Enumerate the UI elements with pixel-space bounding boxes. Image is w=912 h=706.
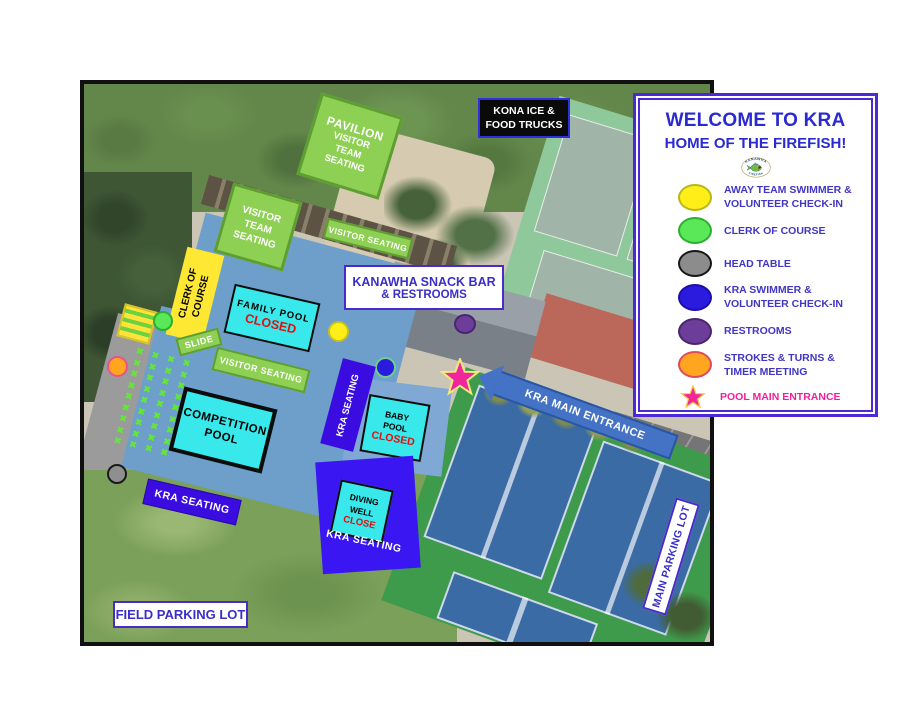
legend-item-pool-entrance: POOL MAIN ENTRANCE: [678, 385, 871, 410]
orange-dot-icon: [678, 351, 712, 378]
legend-item-head-table: HEAD TABLE: [678, 250, 871, 277]
site-map-poster: PAVILION VISITOR TEAM SEATING KONA ICE &…: [0, 0, 912, 706]
legend-item-away-team: AWAY TEAM SWIMMER & VOLUNTEER CHECK-IN: [678, 183, 871, 211]
purple-dot-icon: [678, 318, 712, 345]
kra-check-in-dot: [375, 357, 396, 378]
svg-text:KANAWHA: KANAWHA: [744, 157, 768, 164]
snack-bar-label: KANAWHA SNACK BAR & RESTROOMS: [344, 265, 504, 310]
legend-title: WELCOME TO KRA: [666, 110, 846, 132]
pool-main-entrance-star: [440, 358, 480, 398]
logo-arc-top: KANAWHA: [744, 157, 768, 164]
kona-ice-label: KONA ICE & FOOD TRUCKS: [478, 98, 570, 138]
strokes-turns-timer-dot: [107, 356, 128, 377]
pink-star-icon: [678, 385, 708, 410]
away-team-check-in-dot: [328, 321, 349, 342]
star-icon: [440, 358, 480, 398]
clerk-of-course-dot: [153, 311, 173, 331]
legend-item-restrooms: RESTROOMS: [678, 318, 871, 345]
field-parking-lot-label: FIELD PARKING LOT: [113, 601, 248, 628]
restrooms-dot: [454, 314, 476, 334]
legend-item-strokes-turns: STROKES & TURNS & TIMER MEETING: [678, 351, 871, 379]
legend-inner: WELCOME TO KRA HOME OF THE FIREFISH! KAN…: [638, 98, 873, 412]
legend-panel: WELCOME TO KRA HOME OF THE FIREFISH! KAN…: [633, 93, 878, 417]
svg-text:FIREFISH: FIREFISH: [748, 171, 764, 177]
legend-items: AWAY TEAM SWIMMER & VOLUNTEER CHECK-IN C…: [640, 183, 871, 410]
legend-item-kra-swimmer: KRA SWIMMER & VOLUNTEER CHECK-IN: [678, 283, 871, 311]
legend-item-clerk: CLERK OF COURSE: [678, 217, 871, 244]
facility-map: PAVILION VISITOR TEAM SEATING KONA ICE &…: [80, 80, 714, 646]
logo-arc-bottom: FIREFISH: [748, 171, 764, 177]
yellow-dot-icon: [678, 184, 712, 211]
green-dot-icon: [678, 217, 712, 244]
gray-dot-icon: [678, 250, 712, 277]
blue-dot-icon: [678, 284, 712, 311]
legend-subtitle: HOME OF THE FIREFISH!: [665, 135, 847, 152]
diving-well-block: DIVING WELL CLOSE KRA SEATING: [315, 456, 421, 575]
baby-pool-label: BABY POOL CLOSED: [359, 394, 430, 462]
firefish-logo: KANAWHA FIREFISH: [710, 156, 802, 179]
head-table-dot: [107, 464, 127, 484]
